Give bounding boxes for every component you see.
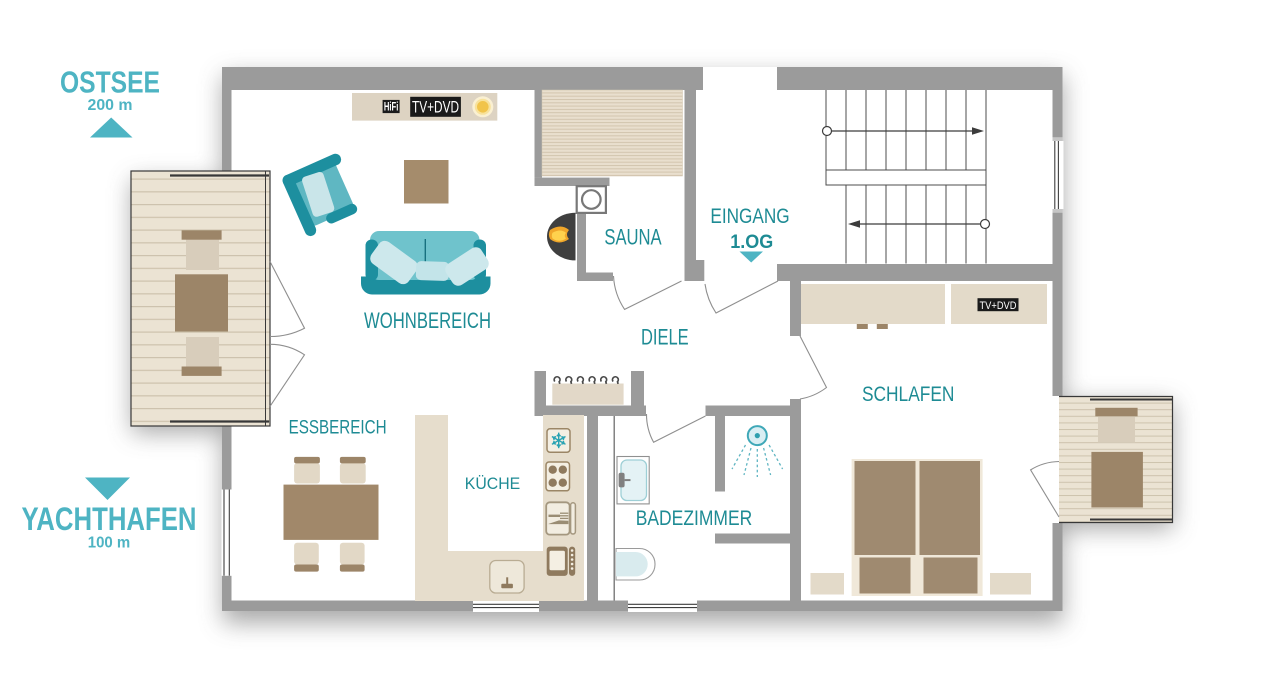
svg-text:SAUNA: SAUNA: [604, 224, 662, 249]
svg-text:ESSBEREICH: ESSBEREICH: [289, 417, 387, 439]
svg-text:TV+DVD: TV+DVD: [412, 98, 459, 117]
svg-text:HiFi: HiFi: [384, 102, 399, 114]
svg-text:EINGANG: EINGANG: [710, 204, 789, 228]
svg-text:KÜCHE: KÜCHE: [465, 475, 520, 493]
svg-text:WOHNBEREICH: WOHNBEREICH: [364, 308, 491, 333]
svg-text:1.OG: 1.OG: [730, 232, 773, 253]
svg-text:OSTSEE: OSTSEE: [60, 65, 160, 100]
svg-text:100 m: 100 m: [88, 535, 131, 552]
svg-text:YACHTHAFEN: YACHTHAFEN: [22, 501, 197, 537]
svg-text:TV+DVD: TV+DVD: [980, 300, 1017, 312]
svg-text:DIELE: DIELE: [641, 325, 689, 350]
svg-text:BADEZIMMER: BADEZIMMER: [636, 507, 753, 530]
svg-text:200 m: 200 m: [88, 97, 133, 114]
svg-text:SCHLAFEN: SCHLAFEN: [862, 382, 955, 406]
